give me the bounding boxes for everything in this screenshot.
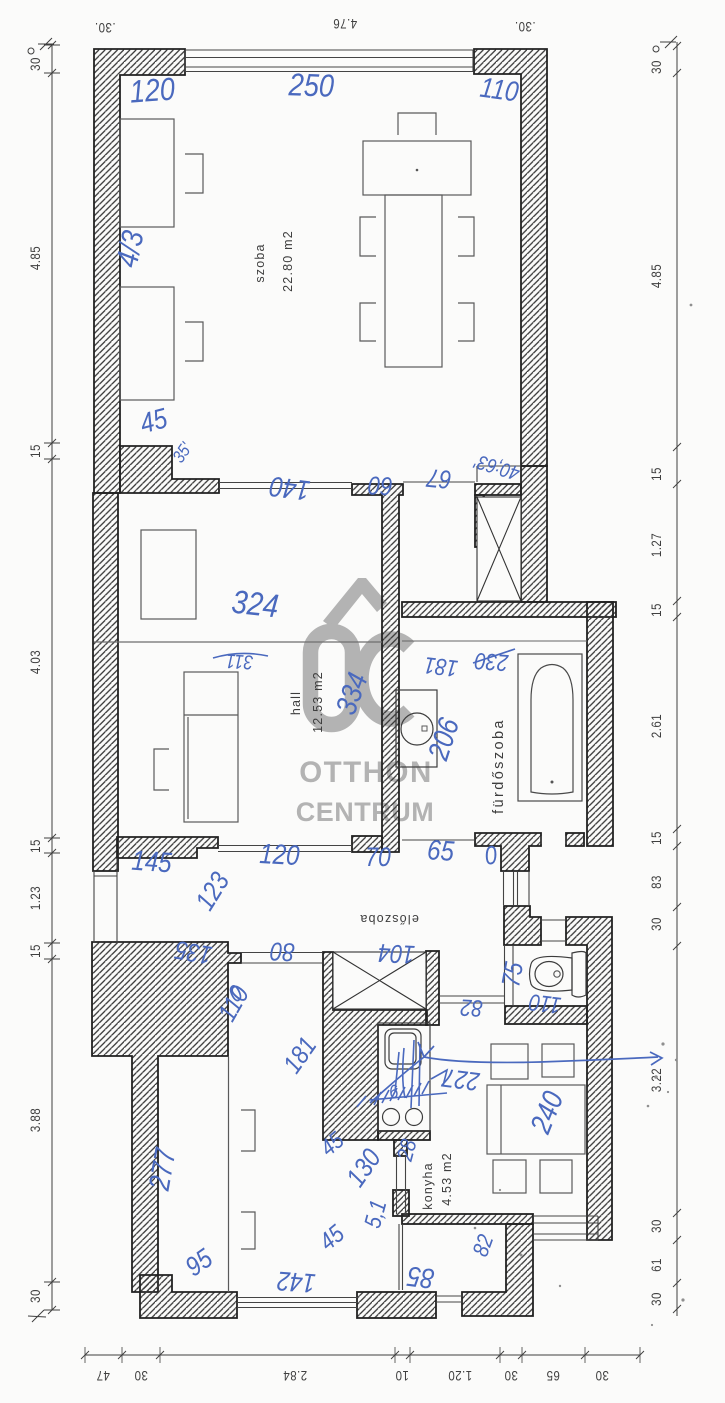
svg-text:104: 104 [377, 938, 415, 969]
svg-text:65: 65 [546, 1368, 560, 1384]
svg-text:60: 60 [367, 470, 394, 500]
svg-text:fürdőszoba: fürdőszoba [491, 718, 507, 814]
svg-text:1.27: 1.27 [648, 533, 664, 557]
svg-text:30: 30 [648, 1292, 664, 1306]
svg-text:120: 120 [259, 837, 301, 871]
svg-text:szoba: szoba [253, 243, 267, 282]
svg-text:12.53 m2: 12.53 m2 [311, 671, 325, 733]
svg-text:30: 30 [27, 57, 43, 71]
svg-text:82: 82 [460, 994, 484, 1022]
svg-text:110: 110 [528, 989, 563, 1020]
svg-text:120: 120 [128, 71, 176, 110]
svg-text:227: 227 [440, 1062, 482, 1096]
svg-text:181: 181 [423, 652, 459, 683]
svg-text:142: 142 [276, 1265, 316, 1298]
svg-text:hall: hall [289, 691, 303, 715]
svg-text:65: 65 [426, 833, 455, 867]
svg-text:15: 15 [648, 831, 664, 845]
svg-text:.30.: .30. [514, 19, 535, 35]
svg-text:61: 61 [648, 1258, 664, 1272]
svg-text:22.80 m2: 22.80 m2 [281, 230, 295, 292]
svg-text:47: 47 [96, 1368, 110, 1384]
svg-text:OTTHON: OTTHON [299, 756, 433, 789]
svg-text:67: 67 [424, 462, 452, 493]
svg-text:.30.: .30. [94, 20, 115, 36]
svg-text:15: 15 [27, 839, 43, 853]
svg-text:110: 110 [478, 71, 521, 108]
svg-text:140: 140 [268, 470, 312, 507]
svg-text:1.23: 1.23 [27, 886, 43, 910]
svg-text:30: 30 [595, 1368, 609, 1384]
svg-text:CENTRUM: CENTRUM [296, 797, 435, 827]
svg-text:145: 145 [131, 844, 174, 879]
svg-text:15: 15 [27, 944, 43, 958]
svg-text:30: 30 [648, 917, 664, 931]
svg-text:83: 83 [648, 875, 664, 889]
svg-text:előszoba: előszoba [359, 912, 419, 926]
svg-text:4.76: 4.76 [333, 16, 357, 32]
svg-text:4.85: 4.85 [648, 264, 664, 288]
svg-text:324: 324 [230, 584, 280, 625]
svg-text:70: 70 [365, 842, 391, 872]
svg-text:10: 10 [395, 1368, 409, 1384]
svg-text:30: 30 [27, 1289, 43, 1303]
svg-text:80: 80 [269, 936, 296, 966]
svg-text:3.22: 3.22 [648, 1068, 664, 1092]
svg-text:4.53 m2: 4.53 m2 [440, 1152, 454, 1206]
svg-text:30: 30 [504, 1368, 518, 1384]
svg-text:30: 30 [134, 1368, 148, 1384]
svg-text:3.88: 3.88 [27, 1108, 43, 1132]
svg-text:1.20: 1.20 [448, 1368, 472, 1384]
svg-text:15: 15 [27, 444, 43, 458]
svg-text:250: 250 [287, 67, 335, 104]
svg-text:30: 30 [648, 60, 664, 74]
svg-text:2.61: 2.61 [648, 714, 664, 738]
svg-text:4.03: 4.03 [27, 650, 43, 674]
svg-text:2.84: 2.84 [283, 1368, 307, 1384]
svg-text:konyha: konyha [421, 1162, 435, 1210]
svg-text:4.85: 4.85 [27, 246, 43, 270]
svg-text:30: 30 [648, 1219, 664, 1233]
svg-text:15: 15 [648, 603, 664, 617]
svg-text:15: 15 [648, 467, 664, 481]
svg-text:85: 85 [405, 1260, 436, 1295]
